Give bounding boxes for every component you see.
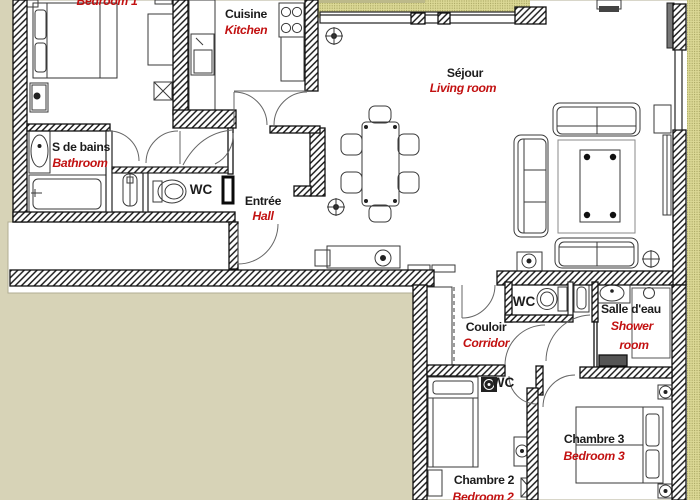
svg-text:Salle d'eau: Salle d'eau [601, 302, 661, 316]
svg-text:Entrée: Entrée [245, 194, 282, 208]
svg-text:Shower: Shower [611, 319, 655, 333]
svg-text:Bedroom 1: Bedroom 1 [77, 0, 138, 8]
svg-text:S de bains: S de bains [52, 140, 110, 154]
svg-text:Living room: Living room [430, 81, 497, 95]
svg-text:Bedroom 2: Bedroom 2 [453, 490, 514, 500]
svg-text:Couloir: Couloir [466, 320, 507, 334]
svg-text:Corridor: Corridor [463, 336, 511, 350]
svg-text:Bathroom: Bathroom [52, 156, 108, 170]
svg-text:WC: WC [513, 294, 536, 309]
svg-text:WC: WC [190, 182, 213, 197]
svg-text:Kitchen: Kitchen [225, 23, 268, 37]
svg-text:Bedroom 3: Bedroom 3 [564, 449, 625, 463]
svg-text:Hall: Hall [252, 209, 274, 223]
svg-text:room: room [619, 338, 649, 352]
svg-text:Cuisine: Cuisine [225, 7, 267, 21]
svg-text:Séjour: Séjour [447, 66, 484, 80]
svg-text:WC: WC [492, 375, 515, 390]
svg-text:Chambre 2: Chambre 2 [454, 473, 515, 487]
svg-text:Chambre 3: Chambre 3 [564, 432, 625, 446]
